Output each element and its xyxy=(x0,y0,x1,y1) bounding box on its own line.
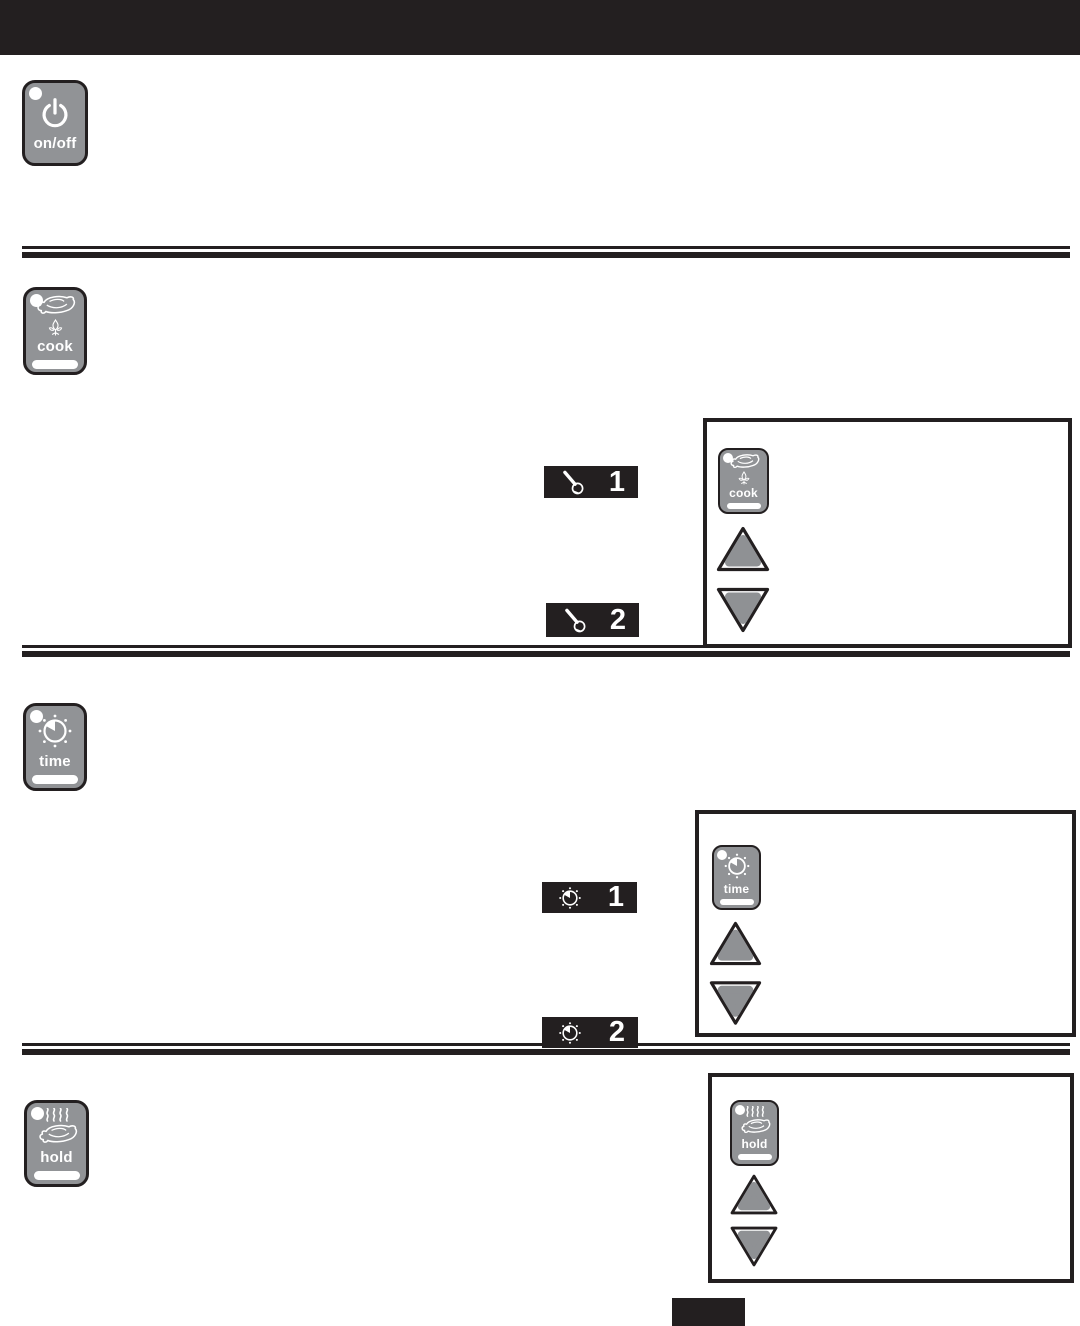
power-icon xyxy=(36,95,74,133)
time-step-2: 2 xyxy=(542,1017,638,1048)
hold-label: hold xyxy=(741,1138,767,1150)
down-arrow-button[interactable] xyxy=(707,977,764,1029)
down-arrow-button[interactable] xyxy=(728,1223,780,1270)
onoff-label: on/off xyxy=(34,136,77,151)
hold-button[interactable]: hold xyxy=(24,1100,89,1187)
time-display-panel: time xyxy=(695,810,1076,1037)
time-button[interactable]: time xyxy=(23,703,87,791)
indicator-bar xyxy=(738,1154,772,1160)
indicator-bar xyxy=(720,899,754,905)
cook-label: cook xyxy=(729,487,758,499)
indicator-dot xyxy=(723,453,733,463)
indicator-dot xyxy=(735,1105,745,1115)
time-button[interactable]: time xyxy=(712,845,761,910)
meat-thermometer-icon xyxy=(559,469,586,496)
indicator-dot xyxy=(31,1107,44,1120)
time-label: time xyxy=(39,754,71,769)
cook-button[interactable]: cook xyxy=(23,287,87,375)
cook-temp-step-1: 1 xyxy=(544,466,638,498)
cook-button[interactable]: cook xyxy=(718,448,769,514)
time-label: time xyxy=(724,883,749,895)
cook-display-panel: cook xyxy=(703,418,1072,648)
hold-label: hold xyxy=(40,1150,72,1165)
up-arrow-button[interactable] xyxy=(728,1172,780,1217)
indicator-bar xyxy=(32,360,78,369)
step-number: 1 xyxy=(608,883,624,912)
cook-temp-step-2: 2 xyxy=(546,603,639,637)
section-divider xyxy=(22,246,1070,258)
indicator-dot xyxy=(29,87,42,100)
hold-display-panel: hold xyxy=(708,1073,1074,1283)
up-arrow-button[interactable] xyxy=(707,919,764,968)
step-number: 2 xyxy=(610,606,626,635)
indicator-dot xyxy=(30,710,43,723)
down-arrow-button[interactable] xyxy=(714,584,772,636)
timer-dial-icon xyxy=(557,1020,583,1046)
hold-button[interactable]: hold xyxy=(730,1100,779,1166)
timer-dial-icon xyxy=(557,885,583,911)
indicator-dot xyxy=(30,294,43,307)
indicator-bar xyxy=(32,775,78,784)
meat-thermometer-icon xyxy=(561,607,588,634)
manual-page: on/off cook xyxy=(0,0,1080,1326)
indicator-bar xyxy=(34,1171,80,1180)
step-number: 1 xyxy=(609,468,625,497)
onoff-button[interactable]: on/off xyxy=(22,80,88,166)
cook-label: cook xyxy=(37,339,73,354)
indicator-bar xyxy=(727,503,761,509)
up-arrow-button[interactable] xyxy=(714,524,772,574)
step-number: 2 xyxy=(609,1018,625,1047)
page-number-box xyxy=(672,1298,745,1326)
time-step-1: 1 xyxy=(542,882,637,913)
header-bar xyxy=(0,0,1080,55)
indicator-dot xyxy=(717,850,727,860)
